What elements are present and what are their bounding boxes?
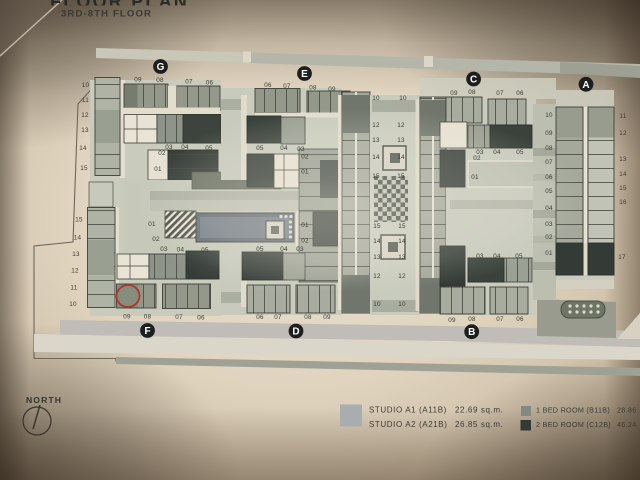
- svg-text:09: 09: [328, 86, 336, 93]
- svg-text:11: 11: [82, 97, 89, 104]
- svg-text:06: 06: [516, 90, 524, 97]
- svg-text:03: 03: [476, 253, 484, 260]
- svg-text:14: 14: [79, 145, 87, 152]
- svg-text:STUDIO A1 (A11B): STUDIO A1 (A11B): [369, 406, 447, 415]
- svg-text:06: 06: [197, 315, 205, 322]
- svg-text:3RD-8TH FLOOR: 3RD-8TH FLOOR: [61, 9, 152, 20]
- svg-text:13: 13: [398, 254, 406, 261]
- svg-text:13: 13: [81, 127, 89, 134]
- svg-text:10: 10: [373, 301, 381, 308]
- svg-text:G: G: [157, 62, 165, 73]
- svg-text:05: 05: [256, 145, 264, 152]
- svg-text:08: 08: [545, 145, 553, 152]
- svg-text:12: 12: [373, 273, 381, 280]
- svg-text:04: 04: [177, 247, 185, 254]
- svg-text:03: 03: [160, 246, 168, 253]
- svg-text:05: 05: [256, 246, 264, 253]
- svg-text:10: 10: [398, 301, 406, 308]
- svg-text:11: 11: [70, 285, 77, 292]
- svg-text:08: 08: [304, 314, 312, 321]
- svg-text:10: 10: [82, 82, 90, 89]
- svg-text:15: 15: [75, 217, 83, 224]
- svg-text:04: 04: [280, 246, 288, 253]
- svg-text:12: 12: [81, 112, 89, 119]
- svg-text:01: 01: [301, 169, 309, 176]
- svg-text:14: 14: [372, 154, 380, 161]
- svg-text:09: 09: [545, 130, 553, 137]
- svg-text:06: 06: [545, 174, 553, 181]
- svg-text:NORTH: NORTH: [26, 395, 62, 405]
- svg-text:02: 02: [473, 155, 481, 162]
- svg-text:13: 13: [373, 254, 381, 261]
- svg-text:06: 06: [264, 82, 272, 89]
- svg-text:09: 09: [123, 314, 131, 321]
- svg-text:04: 04: [493, 149, 501, 156]
- svg-text:2 BED ROOM (C12B): 2 BED ROOM (C12B): [536, 420, 611, 429]
- svg-text:03: 03: [165, 144, 173, 151]
- svg-text:28.86: 28.86: [617, 406, 637, 415]
- svg-text:14: 14: [619, 171, 627, 178]
- svg-text:E: E: [301, 69, 308, 80]
- svg-text:46.24: 46.24: [617, 420, 637, 429]
- svg-text:F: F: [144, 326, 150, 337]
- svg-text:03: 03: [296, 246, 304, 253]
- svg-text:05: 05: [201, 247, 209, 254]
- svg-text:04: 04: [545, 205, 553, 212]
- svg-text:B: B: [468, 327, 475, 338]
- svg-text:01: 01: [301, 222, 309, 229]
- svg-text:15: 15: [398, 223, 406, 230]
- svg-text:14: 14: [373, 238, 381, 245]
- svg-text:D: D: [292, 327, 299, 338]
- svg-text:05: 05: [516, 149, 524, 156]
- svg-text:09: 09: [134, 77, 142, 84]
- svg-text:06: 06: [206, 80, 214, 87]
- svg-text:05: 05: [545, 188, 553, 195]
- svg-text:08: 08: [309, 85, 317, 92]
- svg-text:12: 12: [71, 268, 79, 275]
- svg-text:C: C: [470, 75, 477, 86]
- svg-text:07: 07: [185, 79, 193, 86]
- svg-text:01: 01: [471, 174, 479, 181]
- svg-text:15: 15: [80, 165, 88, 172]
- svg-text:02: 02: [158, 150, 166, 157]
- svg-text:A: A: [582, 80, 589, 91]
- svg-text:13: 13: [372, 137, 380, 144]
- svg-text:10: 10: [399, 95, 407, 102]
- svg-text:09: 09: [450, 90, 458, 97]
- svg-text:03: 03: [297, 146, 305, 153]
- svg-text:01: 01: [154, 166, 162, 173]
- svg-text:11: 11: [619, 113, 626, 120]
- svg-text:12: 12: [619, 130, 627, 137]
- svg-text:05: 05: [205, 145, 213, 152]
- svg-text:14: 14: [74, 235, 82, 242]
- svg-text:06: 06: [256, 314, 264, 321]
- svg-text:01: 01: [545, 250, 553, 257]
- svg-text:04: 04: [280, 145, 288, 152]
- svg-text:14: 14: [397, 154, 405, 161]
- svg-text:08: 08: [468, 89, 476, 96]
- svg-text:04: 04: [493, 253, 501, 260]
- svg-text:02: 02: [152, 236, 160, 243]
- svg-text:01: 01: [148, 221, 156, 228]
- svg-text:14: 14: [398, 238, 406, 245]
- svg-text:12: 12: [372, 122, 380, 129]
- svg-text:26.85 sq.m.: 26.85 sq.m.: [455, 420, 503, 429]
- svg-text:15: 15: [373, 223, 381, 230]
- svg-text:07: 07: [496, 316, 504, 323]
- svg-text:09: 09: [323, 314, 331, 321]
- svg-text:02: 02: [301, 154, 309, 161]
- svg-text:02: 02: [545, 234, 553, 241]
- svg-text:13: 13: [397, 137, 405, 144]
- svg-text:22.69 sq.m.: 22.69 sq.m.: [455, 406, 503, 415]
- svg-text:03: 03: [545, 221, 553, 228]
- svg-text:13: 13: [72, 251, 80, 258]
- svg-text:10: 10: [372, 95, 380, 102]
- svg-text:07: 07: [274, 314, 282, 321]
- svg-text:05: 05: [515, 253, 523, 260]
- svg-text:08: 08: [156, 77, 164, 84]
- svg-text:09: 09: [448, 317, 456, 324]
- svg-text:15: 15: [372, 173, 380, 180]
- svg-text:16: 16: [619, 199, 627, 206]
- svg-text:STUDIO A2 (A21B): STUDIO A2 (A21B): [369, 420, 448, 429]
- svg-text:15: 15: [619, 185, 627, 192]
- svg-text:07: 07: [496, 90, 504, 97]
- svg-text:17: 17: [618, 254, 626, 261]
- svg-text:07: 07: [175, 314, 183, 321]
- svg-text:1 BED ROOM (B11B): 1 BED ROOM (B11B): [536, 406, 610, 415]
- svg-text:15: 15: [397, 173, 405, 180]
- svg-text:12: 12: [397, 122, 405, 129]
- svg-text:13: 13: [619, 156, 627, 163]
- svg-text:12: 12: [398, 273, 406, 280]
- svg-text:10: 10: [69, 301, 77, 308]
- svg-text:04: 04: [181, 144, 189, 151]
- svg-text:02: 02: [301, 238, 309, 245]
- svg-text:10: 10: [545, 112, 553, 119]
- svg-text:08: 08: [144, 314, 152, 321]
- svg-text:07: 07: [283, 83, 291, 90]
- svg-text:07: 07: [545, 159, 553, 166]
- svg-text:08: 08: [468, 316, 476, 323]
- svg-text:06: 06: [516, 316, 524, 323]
